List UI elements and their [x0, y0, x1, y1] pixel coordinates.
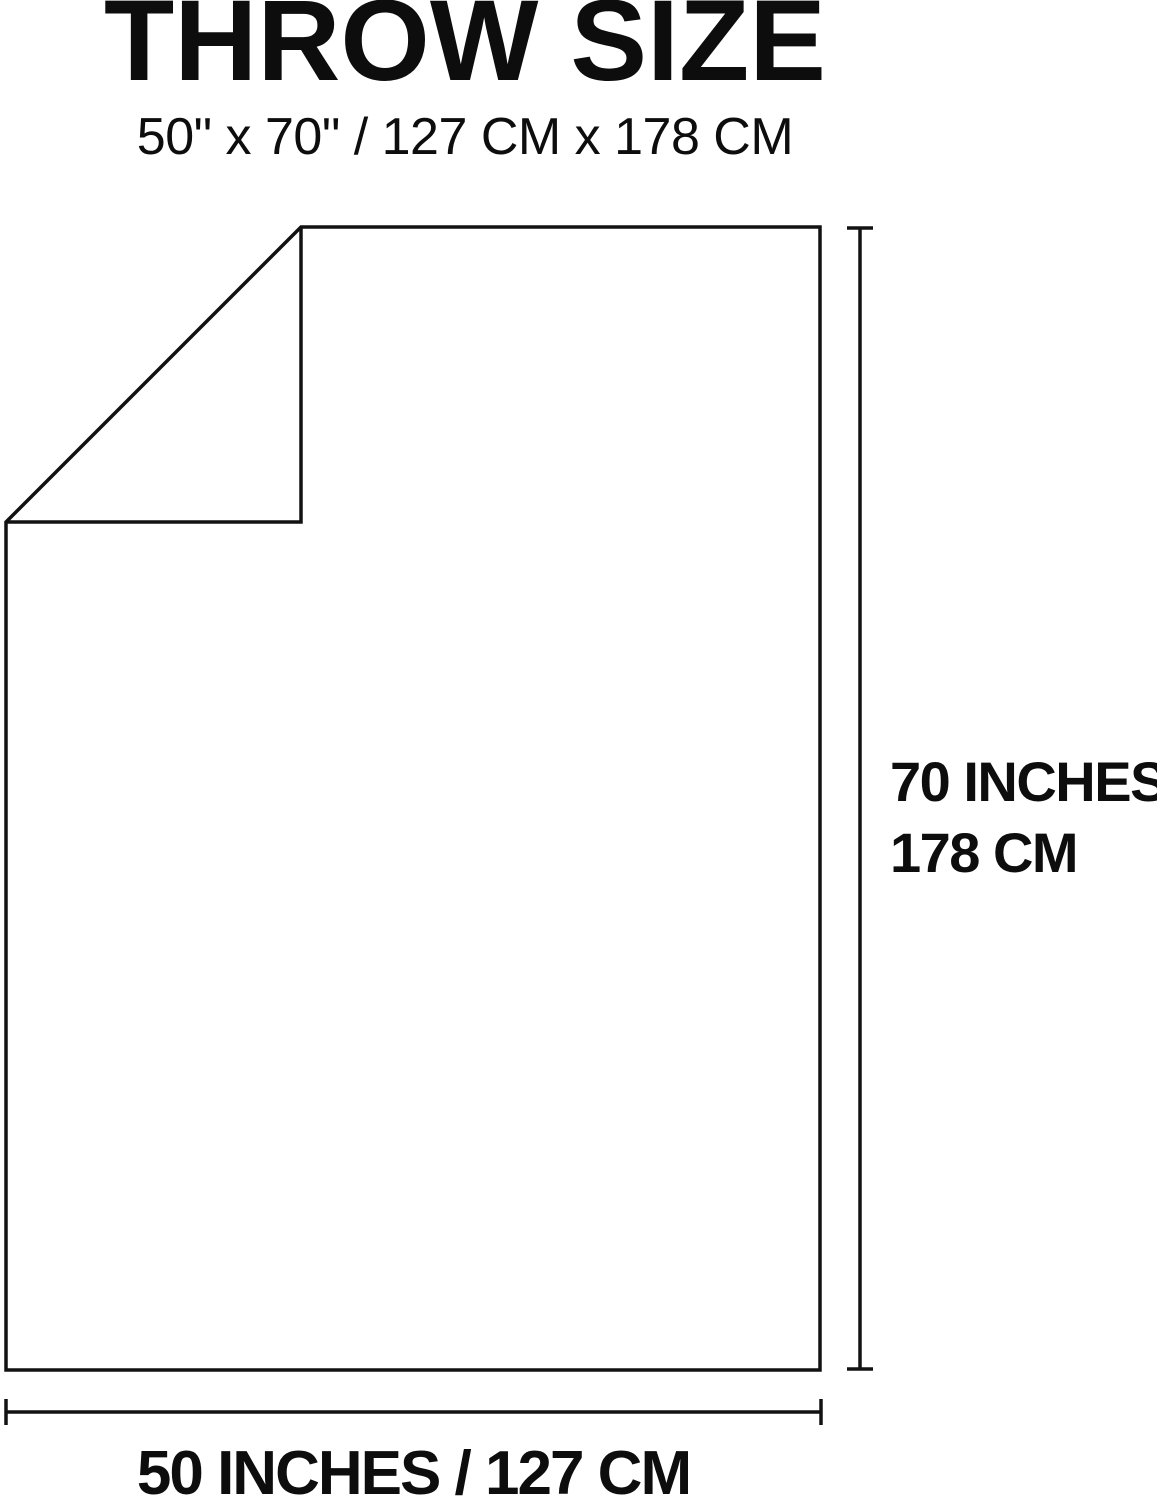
page-subtitle: 50" x 70" / 127 CM x 178 CM — [64, 111, 866, 163]
height-dimension-label-cm: 178 CM — [890, 817, 1157, 888]
page-title: THROW SIZE — [104, 0, 826, 99]
height-dimension-label: 70 INCHES 178 CM — [890, 746, 1157, 888]
throw-size-diagram-page: THROW SIZE 50" x 70" / 127 CM x 178 CM 7… — [0, 0, 1157, 1500]
width-dimension-label: 50 INCHES / 127 CM — [6, 1443, 821, 1500]
height-dimension-label-inches: 70 INCHES — [890, 746, 1157, 817]
blanket-outline — [6, 227, 820, 1370]
